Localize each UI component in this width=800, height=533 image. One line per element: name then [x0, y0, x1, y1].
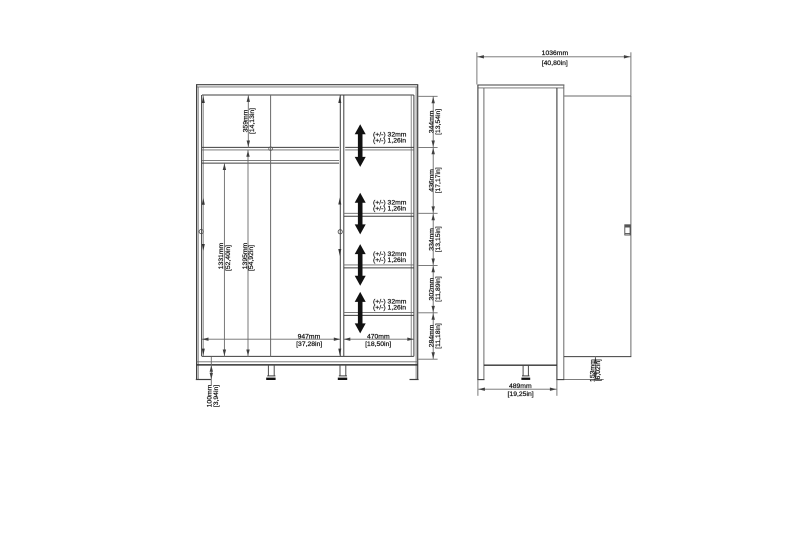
- svg-text:[13,54in]: [13,54in]: [435, 109, 442, 135]
- svg-text:[6,02in]: [6,02in]: [595, 359, 602, 381]
- svg-text:[54,92in]: [54,92in]: [248, 245, 255, 271]
- svg-text:947mm: 947mm: [298, 334, 321, 341]
- svg-text:[17,17in]: [17,17in]: [435, 167, 442, 193]
- svg-text:[13,15in]: [13,15in]: [435, 226, 442, 252]
- svg-text:(+/-) 1,26in: (+/-) 1,26in: [373, 138, 406, 145]
- svg-text:(+/-) 1,26in: (+/-) 1,26in: [373, 305, 406, 312]
- svg-text:[14,13in]: [14,13in]: [249, 108, 256, 134]
- svg-text:[18,50in]: [18,50in]: [365, 341, 391, 348]
- svg-text:[52,40in]: [52,40in]: [225, 245, 232, 271]
- svg-text:[37,28in]: [37,28in]: [296, 341, 322, 348]
- svg-text:[3,94in]: [3,94in]: [213, 385, 220, 407]
- svg-text:[19,25in]: [19,25in]: [508, 391, 534, 398]
- svg-text:1331mm: 1331mm: [218, 242, 225, 269]
- svg-text:[11,89in]: [11,89in]: [435, 276, 442, 302]
- svg-text:[40,80in]: [40,80in]: [542, 60, 568, 67]
- svg-text:1036mm: 1036mm: [542, 50, 569, 57]
- svg-text:470mm: 470mm: [367, 334, 390, 341]
- svg-text:[11,18in]: [11,18in]: [435, 323, 442, 349]
- svg-text:(+/-) 1,26in: (+/-) 1,26in: [373, 206, 406, 213]
- svg-text:489mm: 489mm: [509, 383, 532, 390]
- svg-text:(+/-) 1,26in: (+/-) 1,26in: [373, 257, 406, 264]
